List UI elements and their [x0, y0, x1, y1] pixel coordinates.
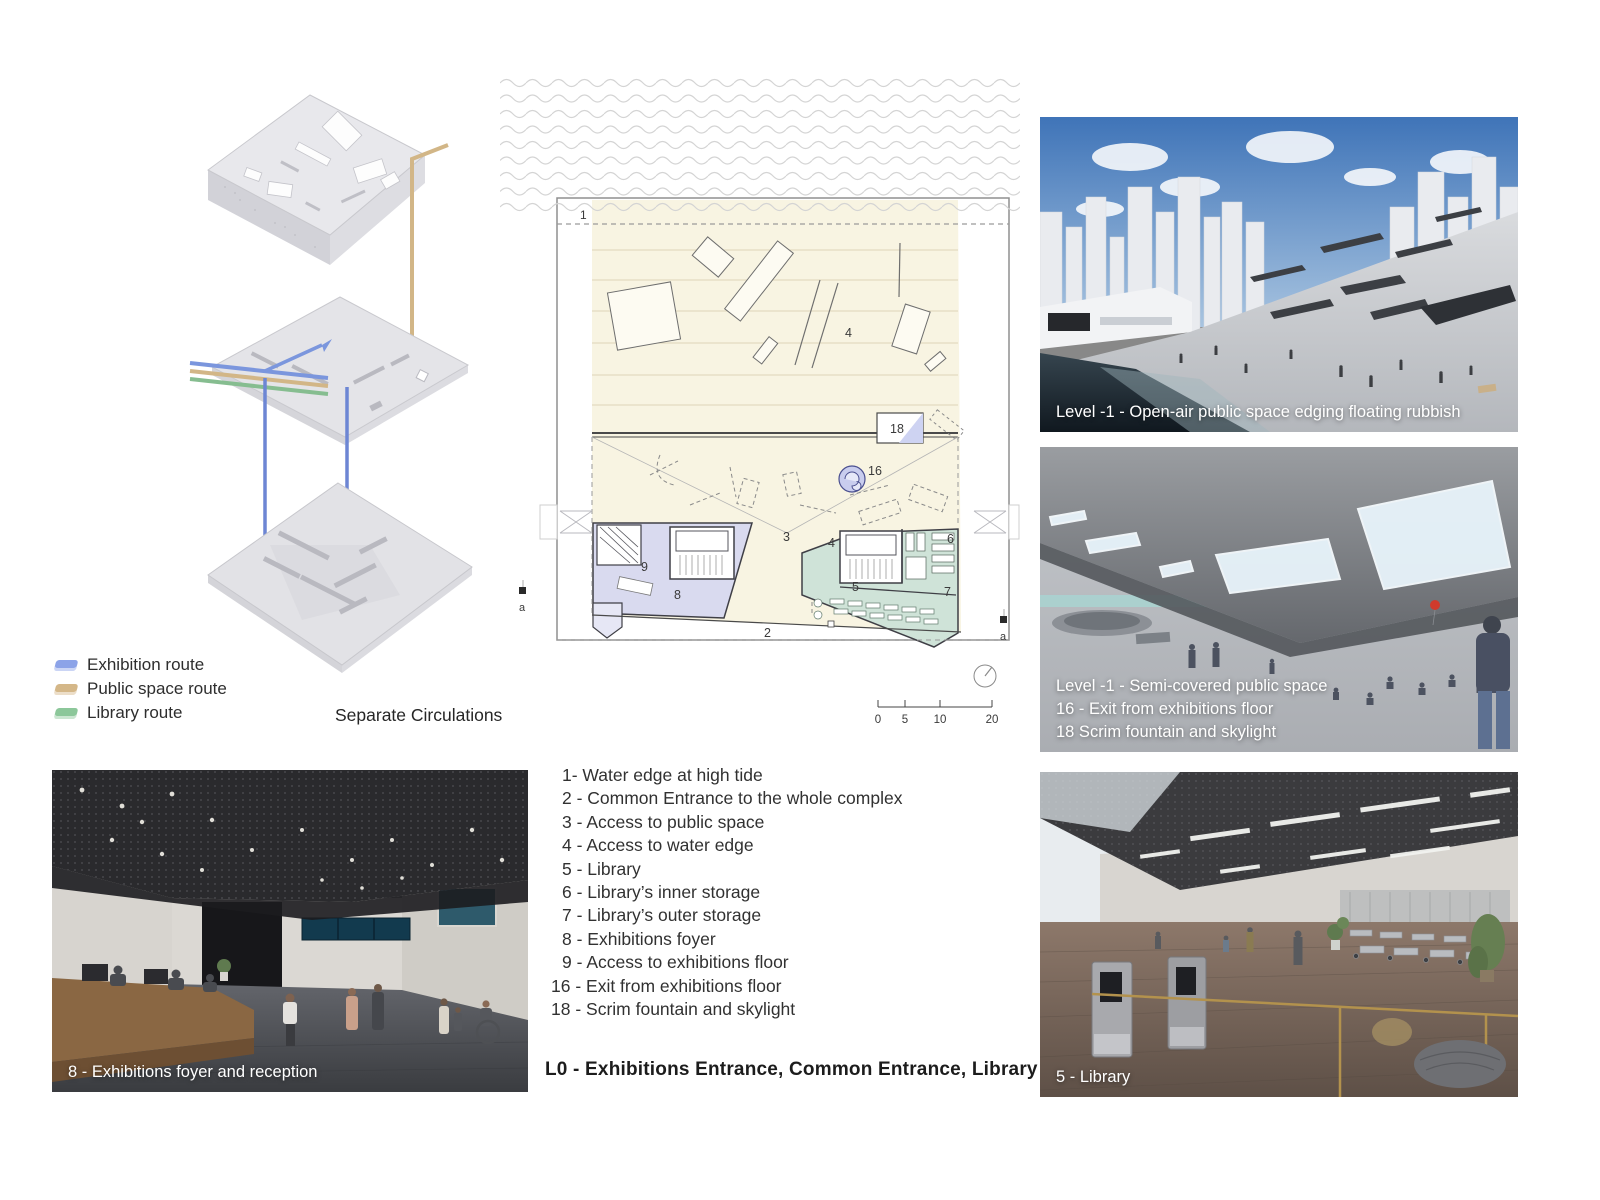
scale-bar: 0 5 10 20: [875, 700, 999, 726]
key-item: 4 - Access to water edge: [551, 834, 1021, 857]
plan-label-8: 8: [674, 588, 681, 602]
svg-text:5: 5: [902, 714, 908, 726]
plan-label-2: 2: [764, 626, 771, 640]
plan-label-5: 5: [852, 580, 859, 594]
svg-text:a: a: [1000, 631, 1007, 643]
legend-item-public-space: Public space route: [55, 677, 227, 701]
key-item: 9 - Access to exhibitions floor: [551, 951, 1021, 974]
render-exhibitions-foyer: 8 - Exhibitions foyer and reception: [52, 770, 528, 1092]
plan-label-4b: 4: [828, 536, 835, 550]
plan-label-9: 9: [641, 560, 648, 574]
open-air-render-image: [1040, 117, 1518, 432]
plan-label-4: 4: [845, 326, 852, 340]
svg-text:0: 0: [875, 714, 881, 726]
render-library-interior: 5 - Library: [1040, 772, 1518, 1097]
open-air-caption: Level -1 - Open-air public space edging …: [1056, 401, 1461, 424]
wicker-basket: [1372, 1018, 1412, 1046]
plan-label-1: 1: [580, 208, 587, 222]
foyer-render-image: [52, 770, 528, 1092]
svg-text:a: a: [519, 602, 526, 614]
key-item: 5 - Library: [551, 858, 1021, 881]
pouf: [1414, 1040, 1506, 1088]
plan-label-7: 7: [944, 585, 951, 599]
plan-label-6: 6: [947, 532, 954, 546]
axon-bottom-slab: [208, 483, 472, 673]
key-item: 18 - Scrim fountain and skylight: [551, 998, 1021, 1021]
axon-roof-slab: [208, 95, 425, 265]
key-item: 8 - Exhibitions foyer: [551, 928, 1021, 951]
axon-middle-slab: [190, 297, 468, 445]
plan-label-16: 16: [868, 464, 882, 478]
library-render-image: [1040, 772, 1518, 1097]
svg-text:10: 10: [934, 714, 947, 726]
key-item: 7 - Library’s outer storage: [551, 904, 1021, 927]
circulation-legend: Exhibition route Public space route Libr…: [55, 653, 227, 725]
svg-text:20: 20: [986, 714, 999, 726]
legend-item-library: Library route: [55, 701, 227, 725]
board-title: L0 - Exhibitions Entrance, Common Entran…: [545, 1059, 1038, 1081]
north-indicator: [974, 665, 996, 687]
key-item: 16 - Exit from exhibitions floor: [551, 975, 1021, 998]
legend-item-label: Exhibition route: [87, 655, 204, 675]
plan-key-list: 1- Water edge at high tide 2 - Common En…: [551, 764, 1021, 1021]
section-marker-left: a: [519, 580, 526, 614]
foyer-caption: 8 - Exhibitions foyer and reception: [68, 1061, 317, 1084]
legend-item-exhibition: Exhibition route: [55, 653, 227, 677]
plan-label-18: 18: [890, 422, 904, 436]
library-caption: 5 - Library: [1056, 1066, 1130, 1089]
plan-label-3: 3: [783, 530, 790, 544]
key-item: 2 - Common Entrance to the whole complex: [551, 787, 1021, 810]
separate-circulations-label: Separate Circulations: [335, 705, 502, 726]
key-item: 1- Water edge at high tide: [551, 764, 1021, 787]
semi-covered-caption: Level -1 - Semi-covered public space 16 …: [1056, 675, 1327, 744]
floor-plan-drawing: 1 4 18: [500, 75, 1020, 735]
key-item: 6 - Library’s inner storage: [551, 881, 1021, 904]
presentation-board: Exhibition route Public space route Libr…: [0, 0, 1600, 1200]
exploded-axonometric-diagram: [40, 75, 500, 675]
render-semi-covered-space: Level -1 - Semi-covered public space 16 …: [1040, 447, 1518, 752]
water-hatch: [500, 77, 1020, 217]
legend-item-label: Library route: [87, 703, 182, 723]
key-item: 3 - Access to public space: [551, 811, 1021, 834]
exhibition-route-swatch: [54, 660, 79, 671]
public-space-route-swatch: [54, 684, 79, 695]
dark-corridor: [202, 902, 282, 990]
legend-item-label: Public space route: [87, 679, 227, 699]
library-route-swatch: [54, 708, 79, 719]
red-balloon: [1430, 600, 1440, 610]
render-open-air-public-space: Level -1 - Open-air public space edging …: [1040, 117, 1518, 432]
